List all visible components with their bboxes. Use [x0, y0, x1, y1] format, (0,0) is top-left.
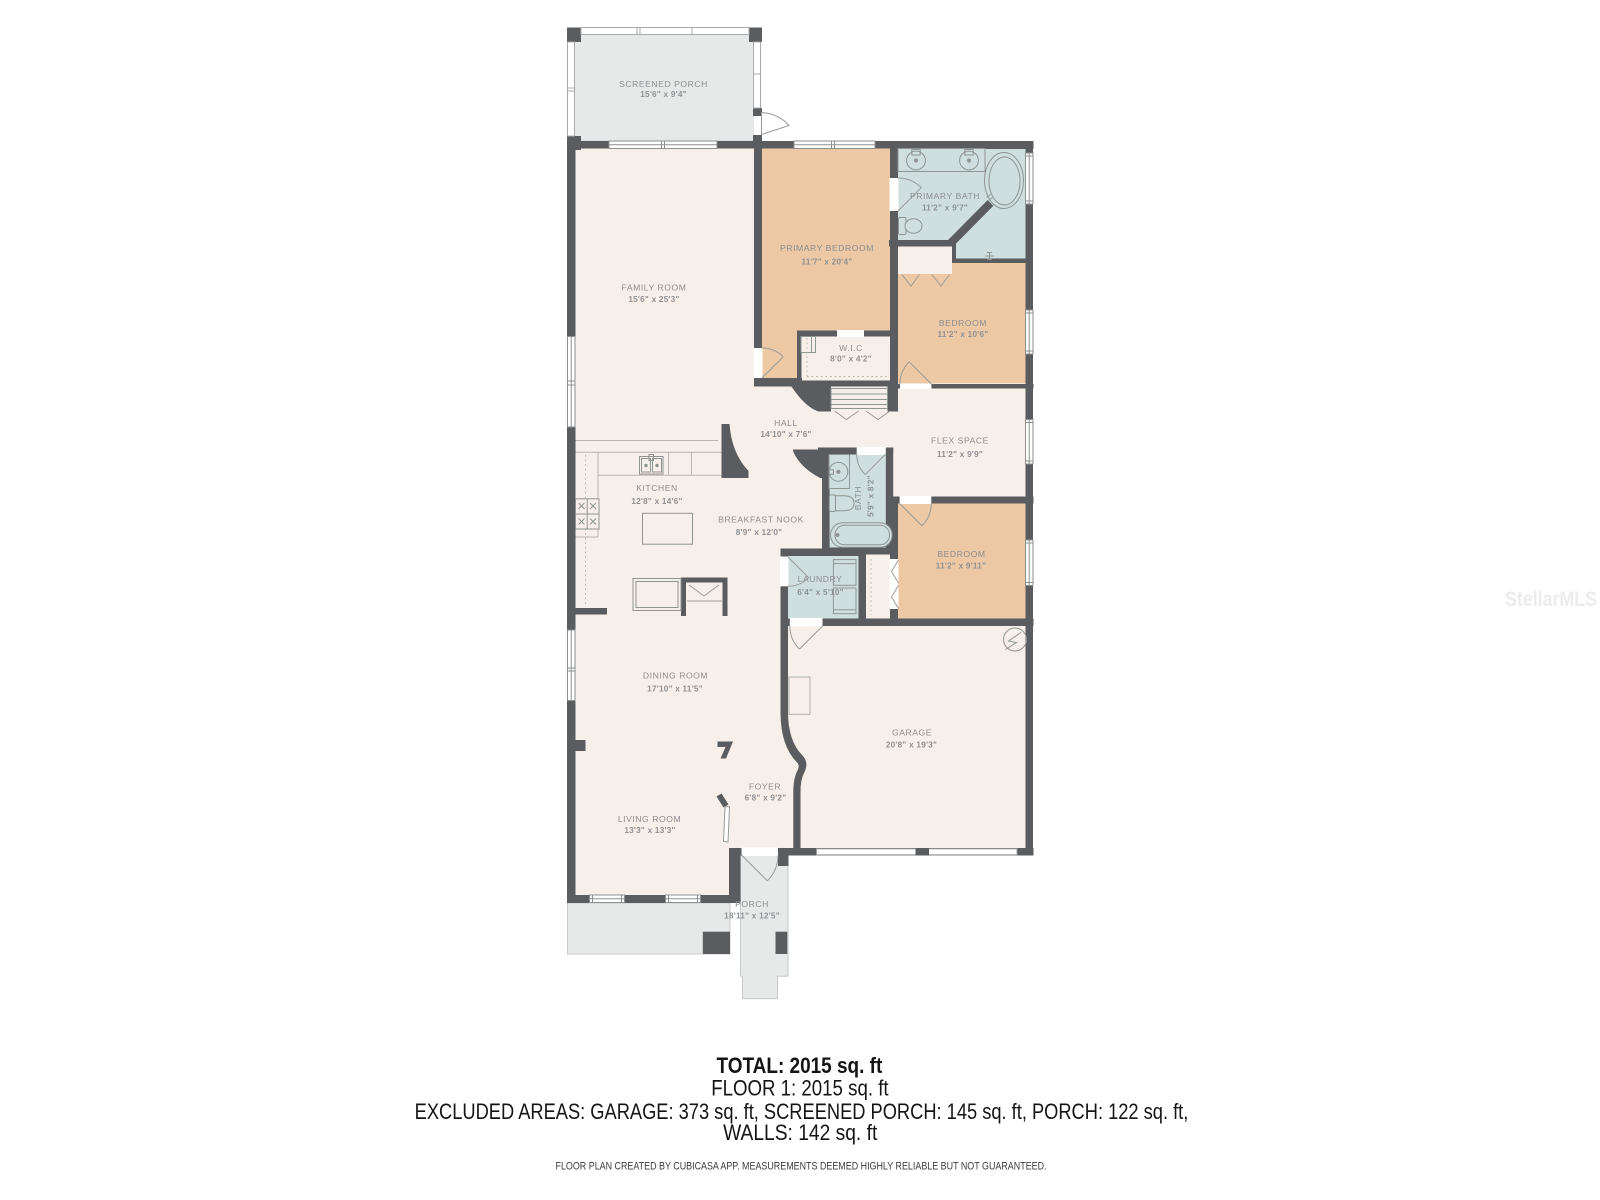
- svg-text:5'9" x 8'2": 5'9" x 8'2": [867, 475, 876, 517]
- svg-text:11'7" x 20'4": 11'7" x 20'4": [802, 258, 853, 267]
- svg-text:15'6" x 25'3": 15'6" x 25'3": [628, 295, 679, 304]
- svg-text:13'3" x 13'3": 13'3" x 13'3": [624, 826, 675, 835]
- svg-text:DINING ROOM: DINING ROOM: [643, 671, 708, 681]
- svg-text:20'8" x 19'3": 20'8" x 19'3": [886, 741, 937, 750]
- svg-text:PRIMARY BEDROOM: PRIMARY BEDROOM: [780, 243, 874, 253]
- svg-text:15'6" x 9'4": 15'6" x 9'4": [640, 90, 687, 99]
- svg-text:SCREENED PORCH: SCREENED PORCH: [619, 79, 708, 89]
- svg-text:HALL: HALL: [774, 418, 798, 428]
- svg-text:FOYER: FOYER: [749, 782, 781, 792]
- svg-text:11'2" x 9'11": 11'2" x 9'11": [936, 562, 986, 571]
- svg-text:FLOOR 1: 2015 sq. ft: FLOOR 1: 2015 sq. ft: [711, 1075, 888, 1100]
- svg-text:StellarMLS: StellarMLS: [1505, 588, 1597, 611]
- svg-text:GARAGE: GARAGE: [892, 728, 932, 738]
- svg-text:11'2" x 9'9": 11'2" x 9'9": [937, 450, 983, 459]
- svg-text:14'10" x 7'6": 14'10" x 7'6": [760, 430, 811, 439]
- svg-text:11'2" x 10'6": 11'2" x 10'6": [938, 330, 989, 339]
- svg-text:LIVING ROOM: LIVING ROOM: [618, 814, 681, 824]
- svg-text:BREAKFAST NOOK: BREAKFAST NOOK: [718, 515, 804, 525]
- svg-text:11'2" x 9'7": 11'2" x 9'7": [922, 204, 968, 213]
- svg-text:KITCHEN: KITCHEN: [636, 483, 678, 493]
- svg-text:BATH: BATH: [853, 486, 863, 510]
- svg-text:FLOOR PLAN CREATED BY CUBICASA: FLOOR PLAN CREATED BY CUBICASA APP. MEAS…: [556, 1161, 1047, 1173]
- svg-text:TOTAL: 2015 sq. ft: TOTAL: 2015 sq. ft: [717, 1053, 883, 1078]
- svg-text:FLEX SPACE: FLEX SPACE: [931, 436, 989, 446]
- svg-text:6'8" x 9'2": 6'8" x 9'2": [745, 794, 787, 803]
- svg-text:BEDROOM: BEDROOM: [939, 318, 987, 328]
- svg-text:17'10" x 11'5": 17'10" x 11'5": [647, 685, 703, 694]
- svg-text:6'4" x 5'10": 6'4" x 5'10": [797, 588, 844, 597]
- svg-text:8'0" x 4'2": 8'0" x 4'2": [830, 355, 872, 364]
- svg-text:8'9" x 12'0": 8'9" x 12'0": [736, 528, 783, 537]
- svg-text:18'11" x 12'5": 18'11" x 12'5": [724, 912, 780, 921]
- svg-text:BEDROOM: BEDROOM: [937, 549, 985, 559]
- svg-text:W.I.C: W.I.C: [839, 343, 863, 353]
- svg-text:FAMILY ROOM: FAMILY ROOM: [622, 283, 687, 293]
- svg-text:12'8" x 14'6": 12'8" x 14'6": [631, 497, 682, 506]
- svg-text:PORCH: PORCH: [735, 899, 769, 909]
- svg-text:PRIMARY BATH: PRIMARY BATH: [910, 191, 980, 201]
- svg-text:WALLS: 142 sq. ft: WALLS: 142 sq. ft: [723, 1120, 877, 1145]
- svg-text:LAUNDRY: LAUNDRY: [798, 574, 843, 584]
